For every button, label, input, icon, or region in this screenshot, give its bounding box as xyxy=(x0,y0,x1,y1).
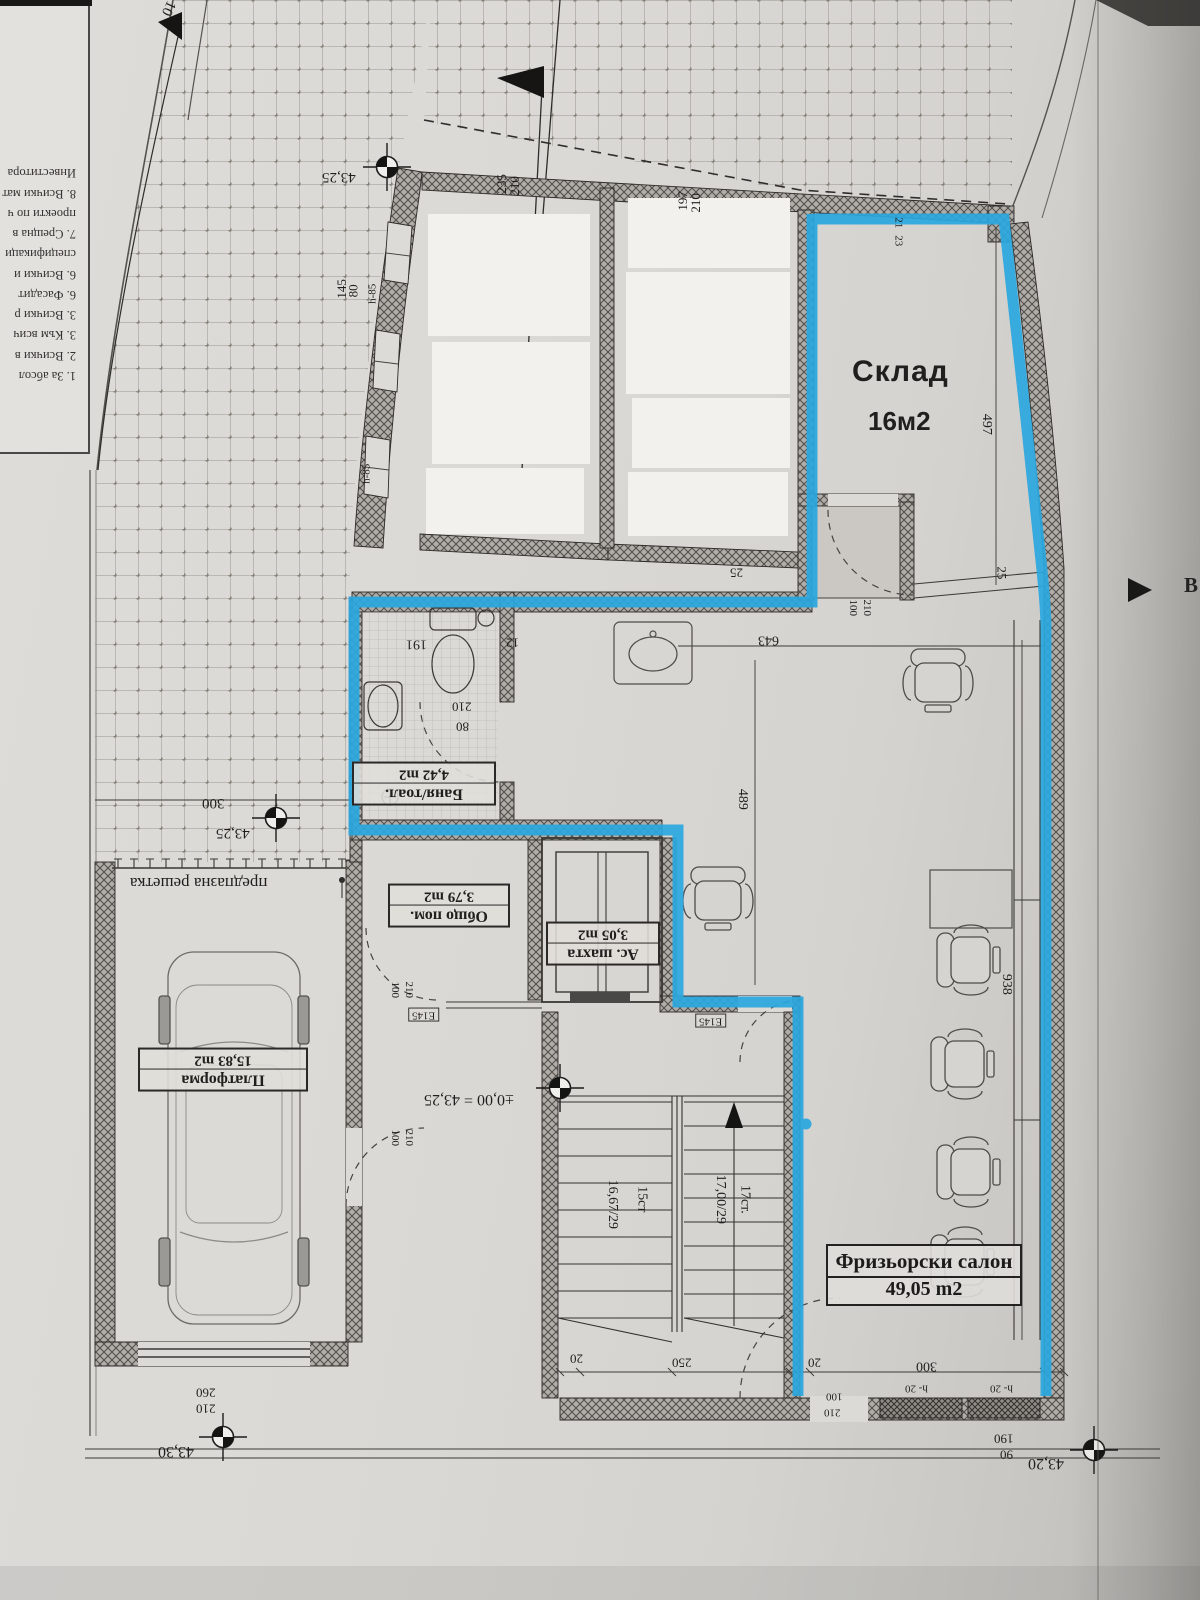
dim-label: 210 xyxy=(508,176,522,196)
note-line: спецификаци xyxy=(0,244,76,264)
note-line: 8. Всички мат xyxy=(0,184,76,204)
platform-area: 15,83 m2 xyxy=(140,1050,306,1070)
elevation-label: 43,25 xyxy=(216,824,250,840)
dim-label: 90 xyxy=(1000,1448,1013,1462)
dim-label: 250 xyxy=(672,1356,692,1370)
dim-label: 12 xyxy=(506,636,519,650)
stair-step-label: 16,67/29 xyxy=(604,1180,619,1229)
elevation-label: 43,20 xyxy=(1028,1454,1064,1471)
dim-label: 191 xyxy=(406,636,427,651)
car xyxy=(159,952,309,1324)
note-line: 7. Срещна в xyxy=(0,224,76,244)
dim-label: 25 xyxy=(995,566,1009,579)
storage-label: Склад xyxy=(852,356,949,388)
paper-shadow-right xyxy=(1070,0,1200,1600)
blue-dot xyxy=(801,1119,812,1130)
scan-edge-top-left xyxy=(0,0,92,6)
dim-label: 210 xyxy=(402,1130,414,1147)
dim-label: 489 xyxy=(734,789,749,810)
dim-label: 100 xyxy=(388,1130,400,1147)
stair-direction-arrow xyxy=(725,1102,743,1128)
dim-label: 23 xyxy=(892,235,904,246)
bath-area: 4,42 m2 xyxy=(354,764,494,784)
platform-name: Платформа xyxy=(140,1070,306,1090)
note-line: 3. Към всич xyxy=(0,325,76,345)
dim-label: 497 xyxy=(978,414,993,435)
plan-drawing xyxy=(0,0,1200,1600)
stair-count-label: 17ст. xyxy=(737,1185,752,1214)
origin-elevation-label: ±0,00 = 43,25 xyxy=(424,1090,514,1107)
note-line: 3. Всички р xyxy=(0,305,76,325)
lintel-label: E145 xyxy=(408,1008,439,1022)
note-line: 2. Всички в xyxy=(0,346,76,366)
shaft-area: 3,05 m2 xyxy=(548,924,658,944)
dim-label: 100 xyxy=(846,600,858,617)
dim-label: h-85 xyxy=(367,284,379,304)
dim-label: 210 xyxy=(689,193,703,213)
note-line: 6. Фасадит xyxy=(0,285,76,305)
common-label-box: Общо пом. 3,79 m2 xyxy=(388,884,510,928)
dim-label: 25 xyxy=(730,566,743,580)
storage-area-label: 16м2 xyxy=(868,408,931,435)
grille-note: предпазна решетка xyxy=(130,874,267,892)
dim-label: 643 xyxy=(758,632,779,647)
note-line: 6. Всички и xyxy=(0,265,76,285)
dim-label: 80 xyxy=(456,720,469,734)
note-line: 1. За абсол xyxy=(0,366,76,386)
dim-label: h- 20 xyxy=(990,1382,1013,1394)
platform-label-box: Платформа 15,83 m2 xyxy=(138,1048,308,1092)
shaft-name: Ас. шахта xyxy=(548,944,658,964)
dim-label: 210 xyxy=(824,1406,841,1418)
dim-label: 938 xyxy=(998,974,1013,995)
dim-label: 21 xyxy=(892,217,904,228)
elevation-label: 43,30 xyxy=(158,1442,194,1459)
dim-label: 210 xyxy=(402,982,414,999)
stair-count-label: 15ст xyxy=(634,1186,649,1212)
dim-label: 20 xyxy=(808,1356,821,1370)
note-line: Инвеститора xyxy=(0,163,76,183)
notes-block: 1. За абсол 2. Всички в 3. Към всич 3. В… xyxy=(0,0,90,454)
window-sills xyxy=(880,1398,1040,1418)
paper-fold-line xyxy=(1097,0,1099,1600)
dim-label: h-85 xyxy=(361,464,373,484)
note-line: проекти по ч xyxy=(0,204,76,224)
dim-label: 210 xyxy=(452,700,472,714)
common-area: 3,79 m2 xyxy=(390,886,508,906)
elevation-label: 43,25 xyxy=(322,168,356,184)
salon-label-box: Фризьорски салон 49,05 m2 xyxy=(826,1244,1022,1306)
floor-plan-scan: 1. За абсол 2. Всички в 3. Към всич 3. В… xyxy=(0,0,1200,1600)
dim-label: 300 xyxy=(916,1358,937,1373)
dim-label: 80 xyxy=(347,284,361,297)
lintel-label: E145 xyxy=(695,1014,726,1028)
stair-step-label: 17,00/29 xyxy=(712,1175,727,1224)
offset-label: 300 xyxy=(202,794,225,810)
dim-label: 100 xyxy=(388,982,400,999)
paper-shadow-bottom xyxy=(0,1566,1200,1600)
shaft-label-box: Ас. шахта 3,05 m2 xyxy=(546,922,660,966)
scan-edge-top-right xyxy=(1096,0,1200,26)
dim-label: 20 xyxy=(570,1352,583,1366)
dim-label: 190 xyxy=(994,1432,1014,1446)
dim-label: 210 xyxy=(860,600,872,617)
staircase xyxy=(558,1096,784,1342)
salon-area: 49,05 m2 xyxy=(828,1276,1020,1304)
dim-label: 210 xyxy=(196,1402,216,1416)
common-name: Общо пом. xyxy=(390,906,508,926)
bath-name: Баня/тоал. xyxy=(354,784,494,804)
bath-label-box: Баня/тоал. 4,42 m2 xyxy=(352,762,496,806)
dim-label: 260 xyxy=(196,1386,216,1400)
salon-name: Фризьорски салон xyxy=(828,1246,1020,1276)
dim-label: h- 20 xyxy=(905,1382,928,1394)
dim-label: 100 xyxy=(826,1390,843,1402)
